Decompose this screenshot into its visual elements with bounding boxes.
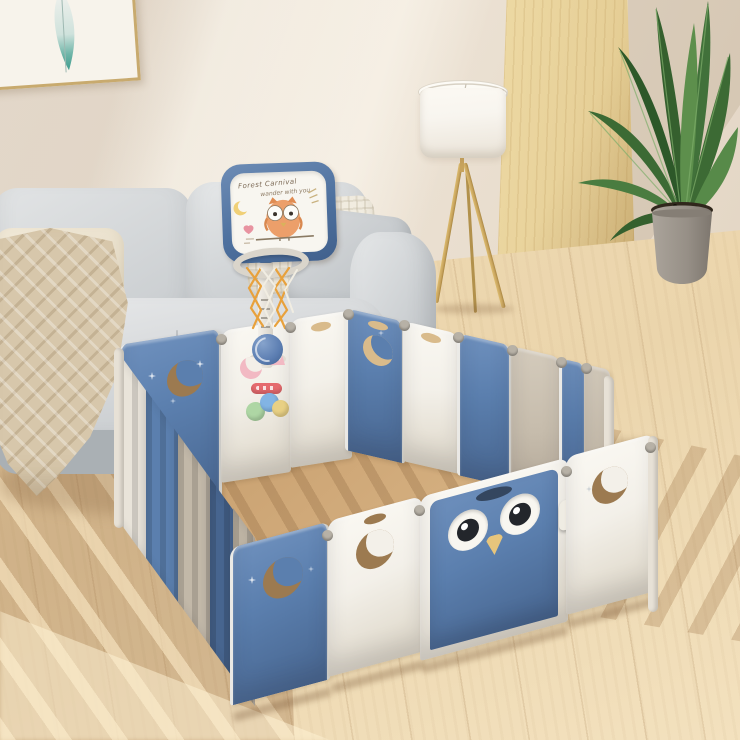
panel-front-blue-moon [230,521,330,706]
moon-cutout [363,332,393,369]
panel-connector [216,334,227,345]
gate-slat-cutouts [443,550,545,639]
lamp-shade [420,88,506,158]
panel-connector [322,530,333,541]
handle-cutout [311,321,331,333]
toy-basketball[interactable] [252,334,283,365]
toy-spinner-yellow[interactable] [272,400,289,417]
heart-drawing [243,225,253,234]
owl-gate-door[interactable] [430,468,558,650]
owl-eye-left [448,505,488,556]
feather-artwork [0,0,144,94]
moon-cutout [263,552,303,603]
panel-connector [507,345,518,356]
art-frame [0,0,141,92]
slat-cutouts [412,377,450,462]
slat-cutouts [300,370,342,455]
handle-cutout [368,319,388,332]
moon-drawing [233,201,247,215]
drawing-board[interactable]: Forest Carnival wander with you [230,170,329,254]
handle-cutout [364,511,386,526]
corner-post-south [648,436,658,612]
panel-blue-moon-back [345,308,405,464]
panel-connector [561,466,572,477]
panel-connector [581,363,592,374]
feather [53,0,77,71]
panel-connector [453,332,464,343]
corner-post-west [114,348,124,528]
panel-connector [285,322,296,333]
handle-cutout [421,331,441,345]
owl-eye-right [500,489,540,540]
panel-connector [645,442,656,453]
potted-plant [560,0,740,305]
panel-white-back [403,321,459,474]
panel-front-white-moon [328,496,422,677]
slat-cutouts [469,392,500,475]
slat-cutouts [577,520,643,602]
panel-connector [399,320,410,331]
slat-cutouts [340,579,410,664]
living-room-scene: Forest Carnival wander with you [0,0,740,740]
panel-front-white-corner [566,433,654,615]
panel-connector [556,357,567,368]
owl-beak [486,533,503,558]
panel-connector [414,505,425,516]
moon-cutout [356,525,394,573]
moon-cutout [592,462,628,508]
owl-drawing [230,170,329,254]
panel-holes [235,442,277,473]
lamp-shadow [434,304,514,314]
slat-cutouts [245,609,315,692]
panel-connector [343,309,354,320]
panel-blue-back [457,333,512,488]
